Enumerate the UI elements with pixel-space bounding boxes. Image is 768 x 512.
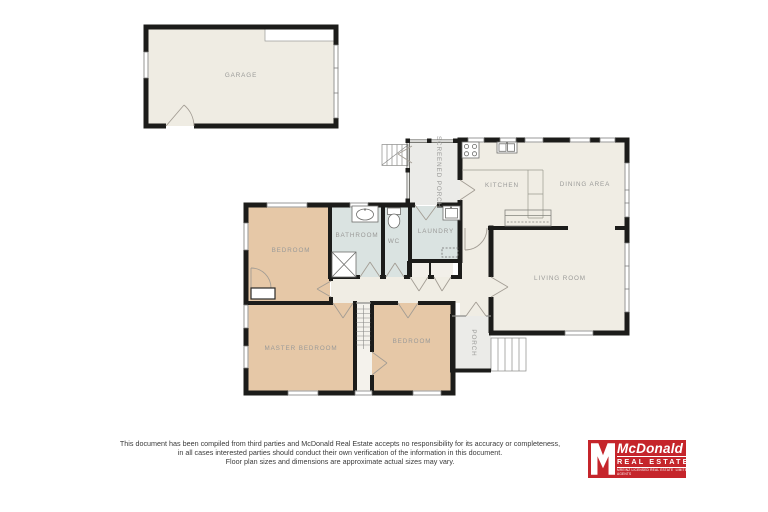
screened-porch-label: SCREENED PORCH (435, 136, 442, 208)
logo-fineprint-right: LIMITED (676, 468, 690, 476)
agency-logo: McDonald REAL ESTATE MREINZ LICENSED REA… (588, 440, 686, 478)
laundry-tub-icon (443, 206, 460, 220)
room-fills (146, 27, 627, 393)
toilet-icon (388, 208, 401, 228)
bedroom-bottom-room (372, 303, 453, 393)
wc-label: WC (388, 238, 400, 245)
stairs-top (382, 145, 408, 166)
bedroom-top-label: BEDROOM (272, 247, 311, 254)
hallway-row (331, 277, 491, 303)
laundry-label: LAUNDRY (418, 228, 454, 235)
logo-text: McDonald REAL ESTATE MREINZ LICENSED REA… (617, 442, 690, 477)
living-room-label: LIVING ROOM (534, 275, 586, 282)
kitchen-sink-icon (497, 142, 517, 153)
logo-fineprint-left: MREINZ LICENSED REAL ESTATE AGENTS (617, 468, 676, 476)
garage-shelf (265, 29, 336, 41)
page: GARAGE SCREENED PORCH KITCHEN DINING ARE… (0, 0, 768, 512)
mcdonald-m-icon (591, 443, 615, 475)
vanity-icon (352, 206, 378, 222)
wardrobe-box (251, 288, 275, 299)
disclaimer-text: This document has been compiled from thi… (40, 439, 640, 467)
screened-porch-room (408, 141, 460, 205)
porch-label: PORCH (470, 329, 477, 356)
logo-fineprint: MREINZ LICENSED REAL ESTATE AGENTS LIMIT… (617, 467, 690, 477)
logo-tagline: REAL ESTATE (617, 456, 690, 466)
kitchen-label: KITCHEN (485, 182, 519, 189)
master-bedroom-label: MASTER BEDROOM (264, 345, 337, 352)
disclaimer-line-2: in all cases interested parties should c… (40, 448, 640, 457)
logo-brand: McDonald (617, 442, 690, 455)
shower-icon (332, 252, 356, 277)
dining-area-label: DINING AREA (560, 181, 611, 188)
garage-label: GARAGE (225, 72, 257, 79)
bathroom-label: BATHROOM (335, 232, 378, 239)
disclaimer-line-1: This document has been compiled from thi… (40, 439, 640, 448)
stove-icon (462, 142, 479, 158)
stairs-bottom (491, 338, 526, 371)
floor-plan-svg: GARAGE SCREENED PORCH KITCHEN DINING ARE… (0, 0, 768, 512)
bedroom-bottom-label: BEDROOM (393, 338, 432, 345)
disclaimer-line-3: Floor plan sizes and dimensions are appr… (40, 457, 640, 466)
